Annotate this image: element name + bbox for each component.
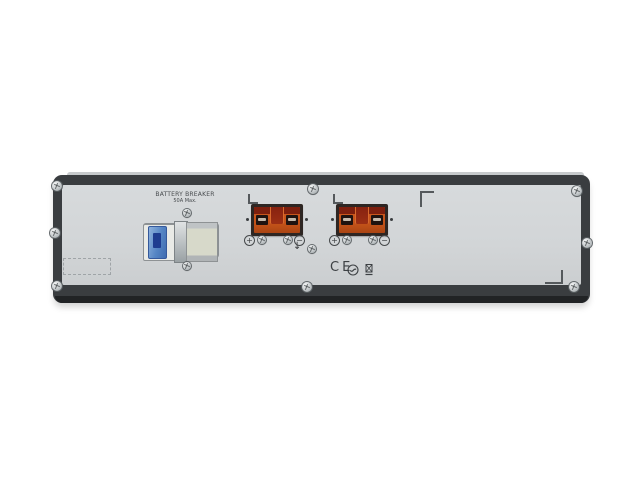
connector-contact bbox=[343, 218, 351, 221]
corner-mark bbox=[248, 194, 258, 204]
connector-tongue bbox=[355, 207, 369, 224]
screw-icon bbox=[50, 228, 60, 238]
connector-contact bbox=[373, 218, 381, 221]
corner-mark bbox=[420, 191, 434, 207]
circuit-breaker-lever-core bbox=[153, 233, 161, 248]
circuit-breaker-body bbox=[186, 222, 218, 262]
pilot-hole bbox=[305, 218, 308, 221]
battery-connector-2 bbox=[336, 204, 388, 236]
connector-slot bbox=[286, 215, 298, 225]
weee-bin-icon bbox=[364, 263, 374, 276]
screw-icon bbox=[52, 281, 62, 291]
connector-slot bbox=[341, 215, 353, 225]
terminal-screw-icon bbox=[369, 236, 377, 244]
rear-panel-face: BATTERY BREAKER 50A Max. bbox=[62, 185, 581, 285]
product-photo: BATTERY BREAKER 50A Max. bbox=[0, 0, 640, 480]
label-placeholder-outline bbox=[63, 258, 111, 275]
connector-housing bbox=[254, 207, 300, 233]
screw-icon bbox=[183, 262, 191, 270]
battery-breaker-label: BATTERY BREAKER 50A Max. bbox=[135, 191, 235, 204]
screw-icon bbox=[572, 186, 582, 196]
positive-terminal-symbol: + bbox=[244, 235, 255, 246]
negative-terminal-symbol: − bbox=[379, 235, 390, 246]
battery-breaker-label-line2: 50A Max. bbox=[135, 198, 235, 204]
battery-pack-rear-panel: BATTERY BREAKER 50A Max. bbox=[53, 172, 590, 303]
ground-screw-icon bbox=[308, 245, 316, 253]
connector-slot bbox=[371, 215, 383, 225]
corner-mark bbox=[545, 270, 563, 284]
screw-icon bbox=[582, 238, 592, 248]
screw-icon bbox=[302, 282, 312, 292]
connector-slot bbox=[256, 215, 268, 225]
ground-arrow-symbol: ↓ bbox=[293, 242, 301, 252]
connector-tongue bbox=[270, 207, 284, 224]
terminal-screw-icon bbox=[258, 236, 266, 244]
battery-connector-1 bbox=[251, 204, 303, 236]
pilot-hole bbox=[390, 218, 393, 221]
battery-breaker-label-line1: BATTERY BREAKER bbox=[135, 191, 235, 198]
screw-icon bbox=[183, 209, 191, 217]
positive-terminal-symbol: + bbox=[329, 235, 340, 246]
terminal-screw-icon bbox=[343, 236, 351, 244]
terminal-screw-icon bbox=[284, 236, 292, 244]
screw-icon bbox=[308, 184, 318, 194]
connector-housing bbox=[339, 207, 385, 233]
connector-contact bbox=[258, 218, 266, 221]
chassis-bottom-edge bbox=[55, 296, 588, 303]
pilot-hole bbox=[331, 218, 334, 221]
connector-contact bbox=[288, 218, 296, 221]
corner-mark bbox=[333, 194, 343, 204]
screw-icon bbox=[569, 282, 579, 292]
screw-icon bbox=[52, 181, 62, 191]
c-tick-mark-icon bbox=[347, 264, 359, 276]
pilot-hole bbox=[246, 218, 249, 221]
